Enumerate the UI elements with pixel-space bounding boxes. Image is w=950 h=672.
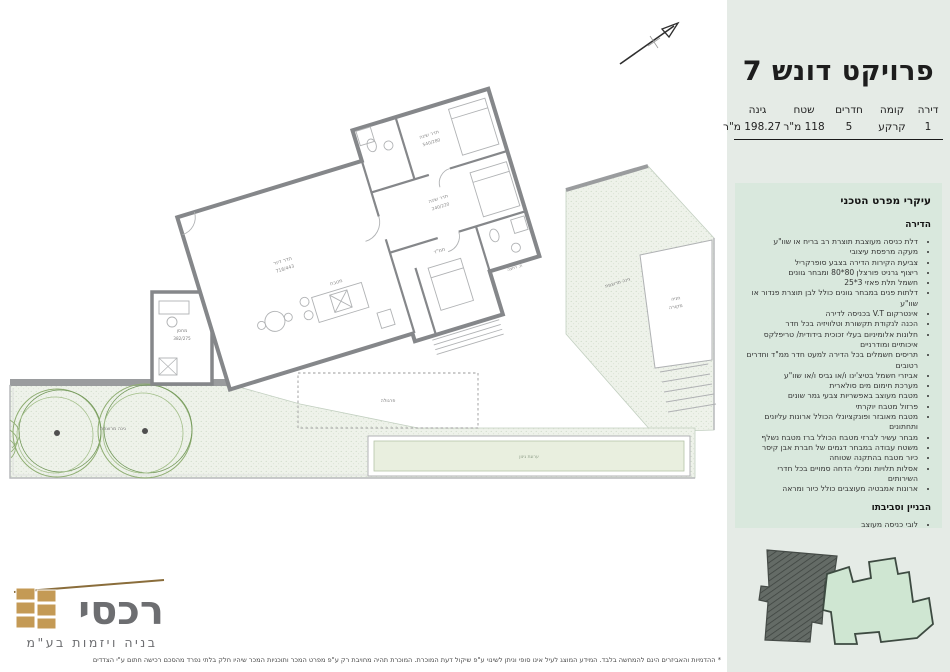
garden-label: גינה מרוצפת <box>100 427 126 432</box>
pergola-label: פרגולה <box>381 398 396 404</box>
spec-item: פרזול מטבח יוקרתי <box>746 402 918 412</box>
table-header-cell: קומה <box>871 104 913 116</box>
spec-item: אביזרי חשמל בטיצ'ינו ו/או גביס ו/או שוו"… <box>746 371 918 381</box>
storage-label: מחסן <box>177 329 188 334</box>
spec-item: מבחר עשיר לברזי מטבח הכולל ברז מטבח נשלף <box>746 433 918 443</box>
apartment: חדר דיור 716/443 מטבח חדר שינה 540/280 ח… <box>168 89 558 416</box>
table-value-cell: 198.27 מ"ר <box>723 121 781 133</box>
table-value-cell: קרקע <box>871 121 913 133</box>
table-header-cell: חדרים <box>827 104 871 116</box>
spec-section-title-building: הבניין וסביבתו <box>746 503 931 513</box>
spec-item: ריצוף גרניט פורצלן 80*80 ומבחר גוונים <box>746 268 918 278</box>
disclaimer-text: * ההדמיות והאביזרים הינם להמחשה בלבד. המ… <box>36 656 721 664</box>
spec-panel-title: עיקרי מפרט הטכני <box>746 195 931 207</box>
table-header-row: דירהקומהחדריםשטחגינה <box>734 104 943 116</box>
planter-label: ערוגת גינון <box>519 455 539 460</box>
spec-item: חלונות אלומיניום בעלי זכוכית בידודית/ טר… <box>746 330 918 351</box>
spec-item: משטח עבודה במבחר דגמים של חברת אבן קיסר <box>746 443 918 453</box>
spec-item: כיור מטבח בהתקנה שטוחה <box>746 453 918 463</box>
spec-item: דלתות פנים במבחר גוונים כולל לבן תוצרת פ… <box>746 288 918 309</box>
minimap-garden-area <box>823 558 933 644</box>
spec-item: לובי כניסה מעוצב <box>746 520 918 528</box>
spec-section-title-apartment: הדירה <box>746 220 931 230</box>
spec-item: הכנה לנקודת תקשורת וטלוויזיה בכל חדר <box>746 319 918 329</box>
spec-item: אינטרקום V.T בכניסה לדירה <box>746 309 918 319</box>
company-logo-graphic: רכסי <box>12 578 170 630</box>
table-header-cell: גינה <box>734 104 781 116</box>
spec-item: מטבח מאובזר ופונקציונלי הכולל ארונות עלי… <box>746 412 918 433</box>
table-value-row: 1קרקע5118 מ"ר198.27 מ"ר <box>734 121 943 133</box>
logo-blocks-icon <box>16 588 56 629</box>
table-value-cell: 5 <box>827 121 871 133</box>
table-value-cell: 118 מ"ר <box>781 121 827 133</box>
spec-item: ארונות אמבטיה מעוצבים כולל כיור ומראה <box>746 484 918 494</box>
spec-item: מטבח מעוצב באפשריות צבעי גמר שונים <box>746 391 918 401</box>
spec-list-apartment: דלת כניסה מעוצבת תוצרת רב בריח או שוו"עמ… <box>746 237 931 494</box>
spec-item: אסלות תלויות ומכלי הדחה סמויים בכל חדרי … <box>746 464 918 485</box>
info-sidebar: פרויקט דונש 7 דירהקומהחדריםשטחגינה 1קרקע… <box>727 0 950 672</box>
storage-dims: 382/275 <box>173 336 191 341</box>
spec-item: מעקה מרפסת עיצובי <box>746 247 918 257</box>
page-title: פרויקט דונש 7 <box>733 56 944 87</box>
floor-plan-svg: חדר דיור 716/443 מטבח חדר שינה 540/280 ח… <box>0 0 727 672</box>
spec-item: חשמל תלת פאזי 3*25 <box>746 278 918 288</box>
company-logo: רכסי בניה ויזמות בע"מ <box>12 578 172 650</box>
spec-item: דלת כניסה מעוצבת תוצרת רב בריח או שוו"ע <box>746 237 918 247</box>
spec-item: צביעת הקירות הדירה בצבע סופרקריל <box>746 258 918 268</box>
spec-list-building: לובי כניסה מעוצבחיפוי הבניין בשילוב אבןח… <box>746 520 931 528</box>
table-header-cell: דירה <box>913 104 943 116</box>
location-minimap <box>751 532 946 652</box>
table-value-cell: 1 <box>913 121 943 133</box>
apartment-info-table: דירהקומהחדריםשטחגינה 1קרקע5118 מ"ר198.27… <box>734 104 943 140</box>
table-header-cell: שטח <box>781 104 827 116</box>
apartment-outline <box>168 89 553 397</box>
logo-tagline: בניה ויזמות בע"מ <box>12 635 172 650</box>
north-arrow-icon <box>620 23 678 64</box>
spec-item: תריסים חשמלים בכל הדירה למעט חדר ממ"ד וח… <box>746 350 918 371</box>
technical-spec-panel: עיקרי מפרט הטכני הדירה דלת כניסה מעוצבת … <box>735 183 942 528</box>
logo-name-text: רכסי <box>78 588 164 630</box>
spec-item: מערכת חימום מים סולארית <box>746 381 918 391</box>
